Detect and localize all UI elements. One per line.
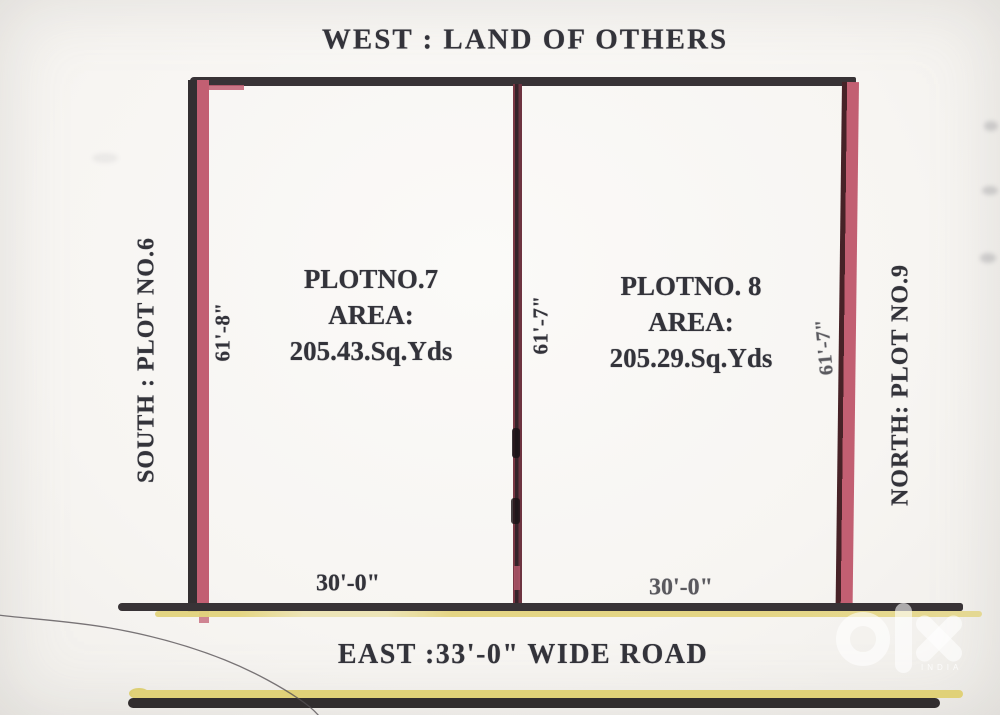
olx-logo-o-icon bbox=[836, 612, 890, 666]
plot-divider-pink-mark bbox=[514, 566, 520, 590]
land-plot-survey-diagram: WEST : LAND OF OTHERS SOUTH : PLOT NO.6 … bbox=[0, 0, 1000, 715]
plot8-side-dimension: 61'-7" bbox=[811, 318, 839, 376]
plot-divider-ink-blob bbox=[512, 428, 520, 458]
plot7-area-label: AREA: bbox=[290, 297, 453, 333]
south-boundary-label: SOUTH : PLOT NO.6 bbox=[134, 237, 161, 483]
plot-divider-ink-blob bbox=[511, 498, 520, 524]
plot7-area-value: 205.43.Sq.Yds bbox=[290, 333, 453, 369]
olx-watermark-country-label: INDIA bbox=[921, 663, 962, 672]
plot7-name: PLOTNO.7 bbox=[290, 261, 453, 297]
road-far-edge-line bbox=[128, 698, 940, 708]
road-near-edge-line bbox=[118, 603, 963, 611]
plot7-info-block: PLOTNO.7 AREA: 205.43.Sq.Yds bbox=[290, 261, 453, 369]
west-boundary-label: WEST : LAND OF OTHERS bbox=[322, 24, 728, 57]
plot7-side-dimension: 61'-8" bbox=[211, 303, 236, 362]
plot-top-boundary-line bbox=[190, 77, 856, 86]
north-boundary-label: NORTH: PLOT NO.9 bbox=[888, 264, 915, 506]
road-far-edge-yellow-stripe bbox=[132, 690, 963, 698]
scan-smudge bbox=[984, 121, 998, 131]
plot-left-boundary-line bbox=[188, 80, 209, 612]
plot-divider-line bbox=[513, 84, 522, 608]
plot-right-boundary-line bbox=[836, 82, 859, 609]
plot8-frontage-dimension: 30'-0" bbox=[649, 575, 713, 602]
scan-smudge bbox=[982, 186, 998, 195]
plot8-area-value: 205.29.Sq.Yds bbox=[610, 340, 773, 376]
scan-smudge bbox=[92, 153, 118, 163]
plot8-name: PLOTNO. 8 bbox=[610, 268, 773, 304]
divider-dimension: 61'-7" bbox=[529, 296, 554, 355]
plot8-area-label: AREA: bbox=[610, 304, 773, 340]
plot7-frontage-dimension: 30'-0" bbox=[316, 571, 380, 598]
scan-smudge bbox=[980, 253, 996, 263]
olx-logo-l-icon bbox=[895, 603, 912, 673]
plot8-info-block: PLOTNO. 8 AREA: 205.29.Sq.Yds bbox=[610, 268, 773, 376]
east-road-label: EAST :33'-0" WIDE ROAD bbox=[338, 639, 708, 671]
